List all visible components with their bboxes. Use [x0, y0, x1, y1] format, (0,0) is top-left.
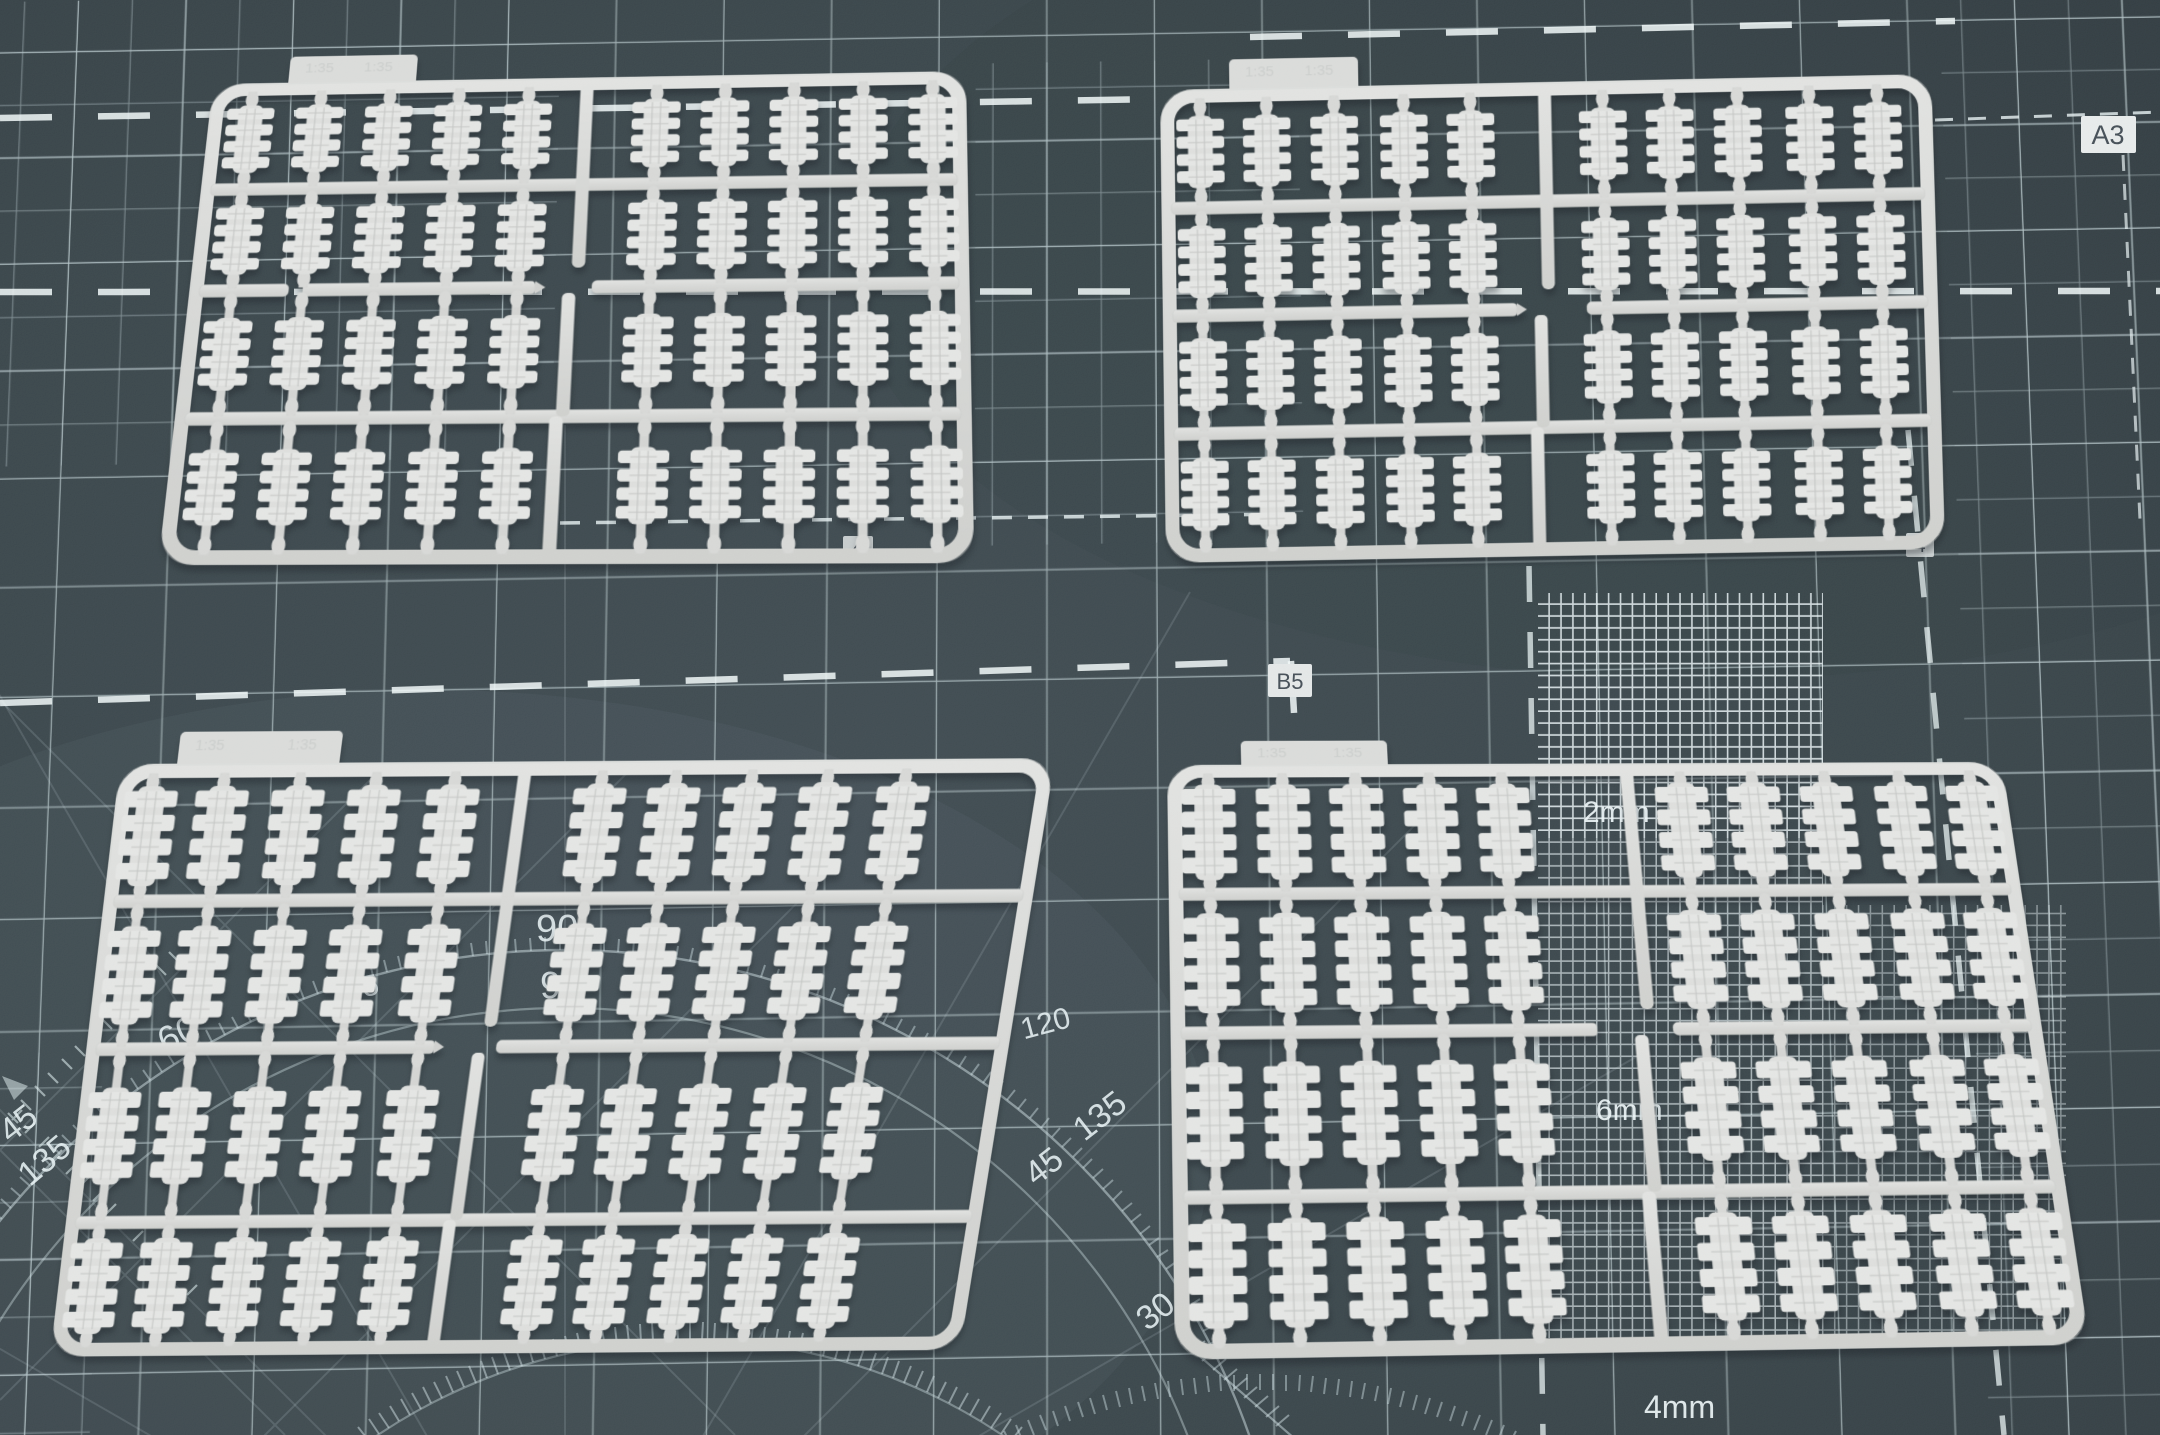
- svg-text:1:35: 1:35: [1245, 64, 1274, 81]
- svg-text:1:35: 1:35: [1304, 63, 1333, 80]
- svg-text:1:35: 1:35: [363, 59, 393, 75]
- svg-text:A3: A3: [2091, 120, 2124, 150]
- svg-text:1:35: 1:35: [1257, 745, 1287, 761]
- svg-text:1:35: 1:35: [194, 737, 225, 754]
- svg-text:1:35: 1:35: [305, 60, 335, 76]
- svg-text:1:35: 1:35: [286, 737, 317, 754]
- svg-text:1:35: 1:35: [1333, 744, 1363, 760]
- svg-text:B5: B5: [1277, 669, 1304, 694]
